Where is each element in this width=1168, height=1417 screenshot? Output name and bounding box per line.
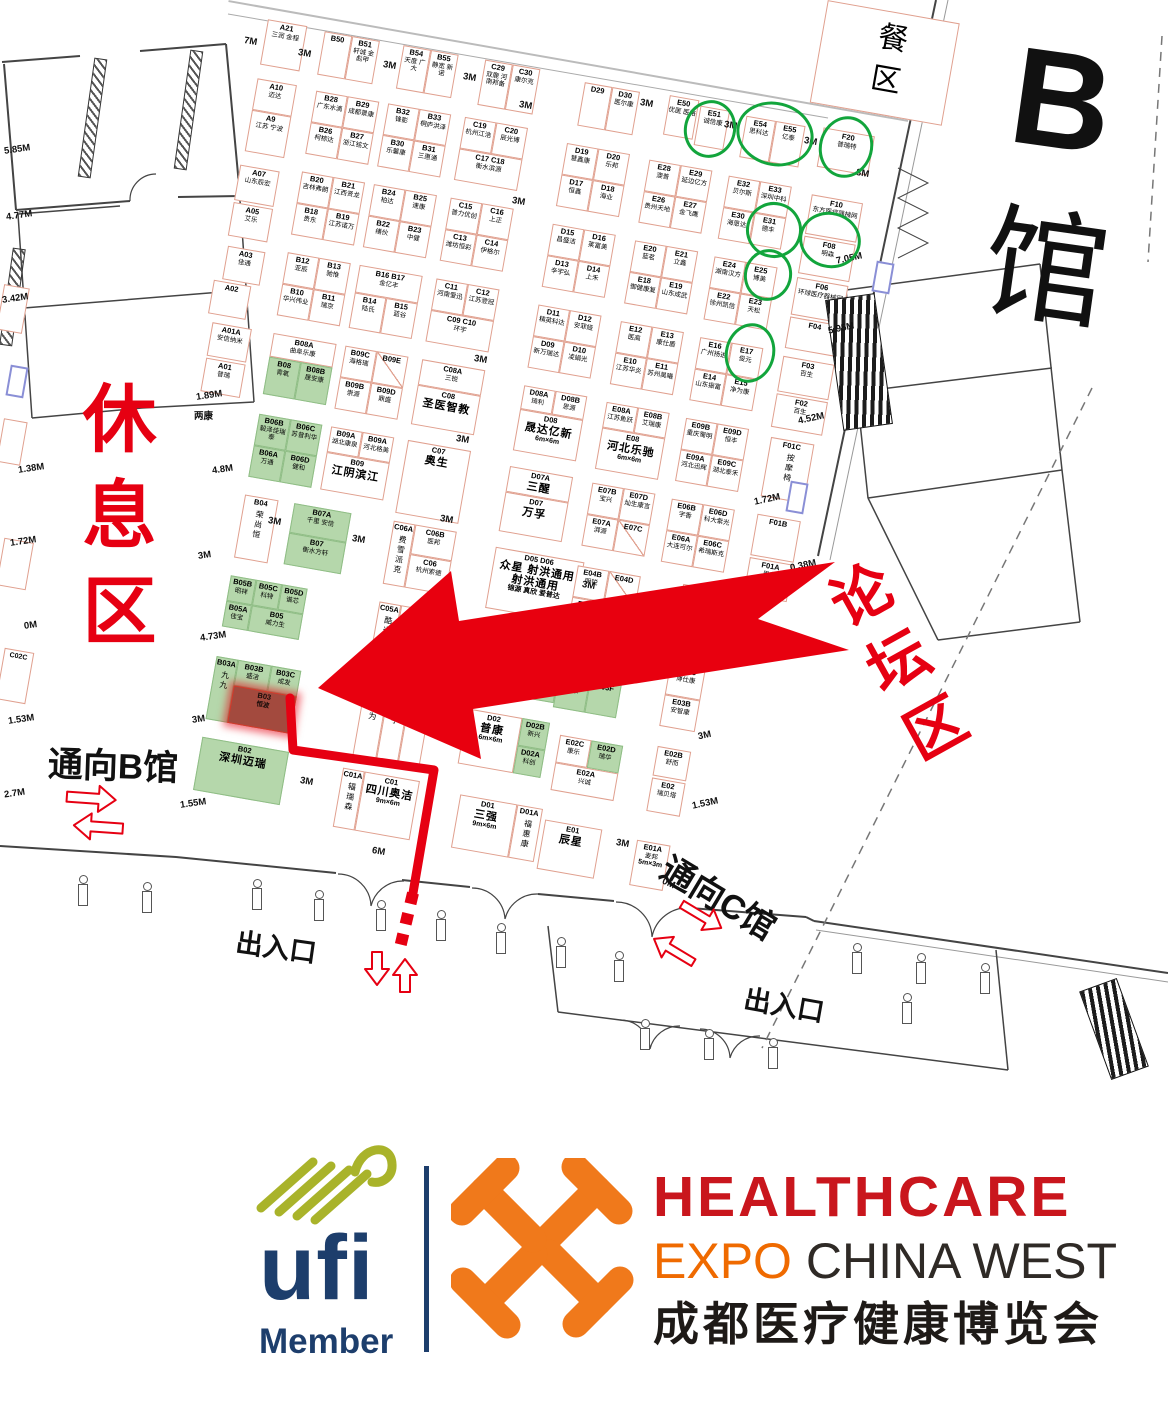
- booth-id: E07C: [623, 523, 643, 535]
- dimension-label: 1.38M: [17, 461, 45, 476]
- pillar: [852, 952, 862, 974]
- route-end-arrow-down: [365, 952, 389, 985]
- booth-name: 山东振富: [695, 380, 722, 392]
- booth-name: 精英科达: [538, 316, 565, 328]
- booth-E19: E19山东成武: [656, 277, 693, 314]
- booth-D14: D14上禾: [573, 261, 610, 298]
- dimension-label: 3M: [511, 195, 526, 208]
- booth-name: 迈腾: [570, 656, 584, 665]
- booth-name: 江西贤龙: [333, 188, 360, 200]
- booth-name: 乐邦: [605, 161, 619, 170]
- booth-E27: E27金飞鹰: [670, 197, 707, 234]
- booth-B02: B02深圳迈瑞: [193, 737, 289, 805]
- booth-name: 驰惟: [326, 270, 340, 279]
- booth-C07: C07奥生: [395, 440, 471, 524]
- dimension-label: 3M: [191, 713, 206, 726]
- edge-booth-fragment: C02C: [0, 648, 34, 704]
- booth-name: 山东辰宏: [244, 176, 271, 188]
- booth-E03F: E03F: [584, 679, 621, 718]
- booth-name: 华飞: [536, 680, 550, 689]
- entrance-label-left: 出入口: [234, 921, 320, 971]
- dimension-label: 3M: [382, 59, 397, 72]
- booth-B09D: B09D鼎盛: [366, 383, 403, 420]
- booth-id: F01C: [782, 441, 802, 453]
- expo-floorplan-page: 餐区 A21三润 金程B50B51轩诚 金彪甲B54天度 广大B55静宽 新诺C…: [0, 0, 1168, 1417]
- booth-A05: A05艾乐: [228, 202, 273, 242]
- booth-E01: E01辰星: [537, 819, 603, 878]
- booth-name: 九九: [217, 670, 229, 691]
- booth-id: E03F: [595, 682, 614, 694]
- forum-area-label: 论坛区: [815, 555, 978, 784]
- expo-chinese-title: 成都医疗健康博览会: [653, 1288, 1103, 1354]
- booth-name: 中健: [406, 233, 420, 242]
- booth-name: 圣医智教: [422, 397, 471, 417]
- booth-name: 徐州凯信: [709, 299, 736, 311]
- booth-E11: E11苏州昊曦: [641, 358, 678, 395]
- booth-B19: B19江苏诺万: [322, 208, 359, 245]
- booth-A02: A02: [208, 280, 251, 320]
- dimension-label: 6M: [371, 845, 386, 858]
- booth-name: 上正: [489, 215, 503, 224]
- booth-B27: B27浙江铭文: [337, 128, 374, 165]
- entrance-label-right: 出入口: [741, 977, 828, 1029]
- pillar: [78, 884, 88, 906]
- dimension-label: 3M: [697, 729, 712, 743]
- hall-name-char: 馆: [973, 160, 1121, 356]
- healthcare-title: HEALTHCARE: [653, 1164, 1071, 1230]
- booth-name: 瑞邦: [579, 609, 593, 618]
- booth-name: 琦利: [531, 397, 545, 406]
- booth-name: 宝兴: [599, 495, 613, 504]
- booth-name: 山东: [408, 618, 434, 634]
- booth-name: 佳通: [237, 258, 251, 267]
- booth-name: 锋影: [394, 115, 408, 124]
- booth-E02: E02瑞贝塔: [646, 777, 685, 816]
- dimension-label: 5.85M: [3, 142, 31, 157]
- booth-id: B03A: [216, 658, 236, 670]
- to-c-hall-label: 通向C馆: [653, 842, 787, 949]
- booth-name: 新兴: [527, 730, 541, 739]
- booth-name: 荣尚恒: [250, 509, 264, 540]
- booth-name: 鸿尔: [541, 649, 555, 658]
- booth-name: 辐瑞森: [342, 781, 356, 812]
- hall-letter: B: [1001, 16, 1122, 187]
- booth-name: 万孚: [521, 506, 547, 522]
- booth-id: B09E: [382, 354, 402, 366]
- booth-size: 5m×3m: [637, 858, 662, 870]
- booth-E05B: E05B兜唯斯: [677, 584, 716, 623]
- door-marker: [785, 481, 808, 515]
- booth-id: D01A: [519, 807, 539, 819]
- booth-name: 广东水滴: [316, 102, 343, 114]
- hatched-wall: [174, 50, 204, 171]
- booth-name: 轩诚 金彪甲: [349, 47, 377, 66]
- booth-name: 静宽 新诺: [428, 61, 456, 80]
- china-west-word: [792, 1233, 806, 1289]
- dimension-label: 4.57M: [709, 645, 737, 661]
- booth-B55: B55静宽 新诺: [423, 50, 458, 98]
- escalator-hatch: [825, 293, 893, 431]
- booth-D30: D30医尔康: [605, 87, 640, 135]
- booth-name: 蓝茗: [641, 252, 655, 261]
- edge-booth-fragment: [0, 418, 28, 465]
- dimension-label: 3M: [351, 533, 366, 546]
- ufi-member-label: Member: [259, 1322, 393, 1362]
- booth-E02B: E02B舒而: [653, 746, 692, 781]
- booth-B31: B31三惠通: [409, 140, 446, 177]
- booth-name: 按摩椅: [781, 452, 795, 483]
- booth-name: 天度 广大: [400, 56, 428, 75]
- dimension-label: 2.7M: [3, 787, 25, 801]
- booth-name: 江苏华炎: [615, 364, 642, 376]
- dimension-label: 4.73M: [199, 629, 227, 644]
- booth-A01A: A01A安信纳米: [207, 322, 252, 362]
- route-line-dashed: [399, 893, 413, 952]
- booth-A9: A9江苏 宁波: [245, 110, 292, 158]
- booth-name: 恒丰: [724, 436, 738, 445]
- dimension-label: 3M: [518, 99, 533, 112]
- booth-name: 陆氏: [361, 305, 375, 314]
- booth-B15: B15蓝谷: [380, 298, 418, 339]
- booth-name: 江阴滨江: [331, 464, 380, 484]
- expo-word: EXPO: [653, 1233, 792, 1289]
- booth-name: 上禾: [585, 273, 599, 282]
- booth-id: E04D: [614, 574, 634, 586]
- booth-A07: A07山东辰宏: [234, 165, 280, 207]
- booth-name: 青氧: [276, 369, 290, 378]
- booth-B08B: B08B晟安康: [294, 362, 332, 405]
- booth-name: 拓新: [411, 709, 423, 730]
- dimension-label: 3M: [473, 353, 488, 366]
- booth-D10: D10凌娟光: [559, 342, 596, 379]
- dimension-label: 0M: [23, 619, 38, 632]
- booth-name: 澳普: [656, 172, 670, 181]
- booth-name: 贵州天地: [644, 202, 671, 214]
- booth-name: 费雪派克: [391, 534, 407, 575]
- hall-boundary-dashed-top: [1148, 36, 1162, 262]
- booth-name: 贵东: [303, 215, 317, 224]
- booth-name: 健和: [292, 463, 306, 472]
- dimension-label: 1.55M: [179, 796, 207, 811]
- booth-id: F04: [808, 322, 822, 333]
- booth-id: D29: [590, 85, 605, 96]
- booth-D01: D01三强9m×6m: [451, 794, 517, 857]
- booth-name: 柏达: [380, 196, 394, 205]
- pillar: [556, 946, 566, 968]
- booth-name: 潍坊恒彩: [445, 240, 472, 252]
- booth-name: 崇源: [346, 389, 360, 398]
- booth-name: 瑞华: [598, 752, 612, 761]
- door-marker: [5, 365, 28, 399]
- booth-name: 立鑫: [673, 258, 687, 267]
- pillar: [436, 919, 446, 941]
- pillar: [902, 1002, 912, 1024]
- dimension-label: 4.77M: [5, 208, 33, 223]
- booth-name: 科特: [260, 591, 274, 600]
- booth-name: 天松: [747, 306, 761, 315]
- pillar: [916, 962, 926, 984]
- booth-id: B04: [253, 498, 268, 509]
- route-end-arrow-up: [393, 959, 417, 992]
- booth-name: 延边亿方: [681, 176, 708, 188]
- booth-name: 桐庐洪泽: [420, 120, 447, 132]
- booth-A03: A03佳通: [222, 246, 265, 286]
- booth-C01: C01四川奥洁9m×6m: [354, 771, 420, 840]
- dimension-label: 3M: [462, 71, 477, 84]
- booth-name: 亚辰: [294, 264, 308, 273]
- booth-E09C: E09C湖北泰禾: [707, 455, 744, 492]
- booth-id: B50: [330, 34, 345, 45]
- booth-name: 思源: [562, 403, 576, 412]
- booth-name: 杭州索德: [415, 566, 442, 578]
- door-marker: [871, 261, 894, 295]
- booth-B51: B51轩诚 金彪甲: [345, 36, 380, 84]
- booth-name: 缮伙: [375, 228, 389, 237]
- booth-name: 诚康: [565, 686, 579, 695]
- booth-name: 深圳迈瑞: [218, 751, 267, 771]
- booth-E03B: E03B安智康: [659, 694, 700, 732]
- stairs-zigzag: [898, 168, 928, 258]
- booth-name: 恒鑫: [568, 187, 582, 196]
- dimension-label: 3M: [439, 513, 454, 526]
- expo-logo-block: ufi Member HEALTHCARE EXPO CHINA WEST 成都…: [245, 1150, 1140, 1400]
- dimension-label: 1.53M: [691, 795, 719, 811]
- booth-name: 鼎盛: [378, 395, 392, 404]
- dimension-label: 3M: [267, 515, 282, 528]
- booth-name: 双鹿 河南邦备: [482, 70, 510, 89]
- booth-name: 福惠康: [518, 818, 532, 849]
- booth-name: 昭祥: [234, 587, 248, 596]
- dimension-label: 4.8M: [211, 463, 233, 477]
- booth-name: 新万瑞达: [533, 347, 560, 359]
- booth-name: 康乐: [566, 747, 580, 756]
- pillar: [704, 1038, 714, 1060]
- booth-name: 瑞京: [320, 301, 334, 310]
- dimension-label: 3M: [661, 597, 676, 610]
- logo-divider: [424, 1166, 429, 1352]
- dimension-label: 3M: [297, 47, 312, 60]
- booth-E05A: E05A德尚塔: [671, 617, 710, 656]
- booth-name: 谱芯: [285, 596, 299, 605]
- pillar: [640, 1028, 650, 1050]
- booth-name: 普力优创: [451, 209, 478, 221]
- booth-name: 河南爱迅: [436, 289, 463, 301]
- booth-name: 酷米特: [379, 615, 393, 646]
- booth-B11: B11瑞京: [308, 289, 345, 326]
- to-b-hall-arrows: [64, 784, 126, 842]
- booth-D02: D02普康6m×6m: [458, 708, 523, 773]
- booth-name: 艾乐: [244, 215, 258, 224]
- pillar: [376, 909, 386, 931]
- booth-name: 思杰: [762, 570, 776, 579]
- booth-A21: A21三润 金程: [260, 19, 307, 71]
- dimension-label: 3M: [299, 775, 314, 788]
- booth-name: 湃源: [593, 526, 607, 535]
- booth-name: 迈达: [268, 91, 282, 100]
- pillar: [496, 932, 506, 954]
- booth-name: 杭州江浩: [465, 128, 492, 140]
- pillar: [614, 960, 624, 982]
- highlight-circle: [729, 94, 820, 175]
- booth-name: 三锐: [444, 374, 458, 383]
- booth-name: 浙江铭文: [342, 139, 369, 151]
- pillar: [252, 888, 262, 910]
- booth-name: 江苏登冠: [468, 295, 495, 307]
- booth-name: 海业: [599, 192, 613, 201]
- booth-E07C: E07C: [613, 520, 650, 557]
- booth-B04: B04荣尚恒: [234, 494, 279, 563]
- dimension-label: 3M: [639, 97, 654, 110]
- booth-D18: D18海业: [587, 180, 624, 217]
- pinwheel-icon: [451, 1158, 641, 1348]
- booth-name: 舒而: [665, 758, 679, 767]
- booth-name: 辰星: [558, 833, 584, 849]
- booth-name: 湖南汉方: [714, 267, 741, 279]
- booth-id: F01B: [768, 518, 788, 530]
- booth-id: C01A: [343, 770, 363, 782]
- pillar: [768, 1047, 778, 1069]
- booth-name: 医邦: [427, 537, 441, 546]
- dimension-label: 3M: [423, 593, 438, 606]
- booth-name: 广州扬进: [700, 348, 727, 360]
- pillar: [980, 972, 990, 994]
- booth-B06D: B06D健和: [280, 451, 317, 488]
- pillar: [314, 899, 324, 921]
- dimension-label: 3M: [455, 433, 470, 446]
- dimension-label: 3M: [197, 549, 212, 562]
- highlight-circle: [812, 110, 879, 183]
- booth-name: 衡水方轩: [302, 546, 329, 558]
- hatched-wall: [78, 58, 108, 179]
- booth-name: 华兴伟业: [282, 295, 309, 307]
- booth-C14: C14伊格尔: [471, 235, 508, 272]
- booth-B23: B23中健: [394, 221, 431, 258]
- booth-id: A02: [224, 284, 239, 295]
- dimension-label: 3M: [581, 579, 596, 592]
- dimension-label: 两康: [194, 408, 213, 422]
- booth-C05: C05山东: [390, 605, 446, 676]
- dimension-label: 1.53M: [7, 712, 35, 727]
- booth-F01B: F01B: [750, 514, 801, 563]
- dimension-label: 3M: [615, 837, 630, 850]
- booth-name: 医高: [627, 333, 641, 342]
- booth-name: 环宇: [453, 325, 467, 334]
- dimension-label: 7M: [243, 35, 258, 48]
- to-b-hall-label: 通向B馆: [47, 736, 179, 792]
- booth-E06C: E06C希瑞斯克: [692, 536, 729, 573]
- ufi-wordmark: ufi: [259, 1216, 374, 1321]
- rest-area-label: 休息区: [76, 380, 150, 668]
- booth-name: 吉林弗朗: [302, 182, 329, 194]
- booth-name: 成都沿长: [482, 639, 531, 659]
- booth-name: 恒波: [256, 700, 270, 709]
- dimension-label: 1.89M: [195, 388, 223, 403]
- booth-name: 兴诚: [577, 777, 591, 786]
- booth-name: 成发: [277, 678, 291, 687]
- booth-name: 百生: [799, 370, 813, 379]
- booth-F01A: F01A思杰: [743, 557, 793, 602]
- booth-name: 万通: [260, 457, 274, 466]
- expo-china-west-line: EXPO CHINA WEST: [653, 1232, 1117, 1290]
- booth-C06: C06杭州索德: [404, 554, 451, 595]
- booth-id: C06A: [393, 523, 413, 535]
- booth-id: C05A: [379, 604, 399, 616]
- booth-name: 科创: [522, 757, 536, 766]
- booth-E04C: E04C昊尔盾: [598, 602, 635, 639]
- booth-name: 普瑞: [216, 370, 230, 379]
- booth-D02A: D02A科创: [513, 746, 545, 778]
- booth-name: 大为: [366, 701, 378, 722]
- booth-name: 山东成武: [661, 288, 688, 300]
- pillar: [142, 891, 152, 913]
- booth-name: 苏州昊曦: [647, 369, 674, 381]
- dining-area-label: 餐区: [856, 18, 914, 108]
- booth-name: 蓝谷: [393, 310, 407, 319]
- booth-name: 盛洁: [246, 672, 260, 681]
- dimension-label: 1.72M: [753, 491, 781, 507]
- booth-name: 汇宇: [389, 705, 401, 726]
- booth-name: 宇香: [678, 511, 692, 520]
- booth-name: 御健康复: [629, 283, 656, 295]
- booth-name: 江苏 宁波: [255, 121, 284, 133]
- booth-name: 三润 金程: [271, 31, 300, 43]
- booth-name: 成都景康: [348, 107, 375, 119]
- booth-name: 江苏诺万: [328, 219, 355, 231]
- booth-name: 奥生: [424, 454, 450, 470]
- booth-F03: F03百生: [777, 356, 834, 400]
- booth-name: 速康: [412, 202, 426, 211]
- booth-name: 佳宝: [230, 612, 244, 621]
- top-left-rooms: [2, 44, 240, 210]
- hatched-wall: [1079, 978, 1149, 1080]
